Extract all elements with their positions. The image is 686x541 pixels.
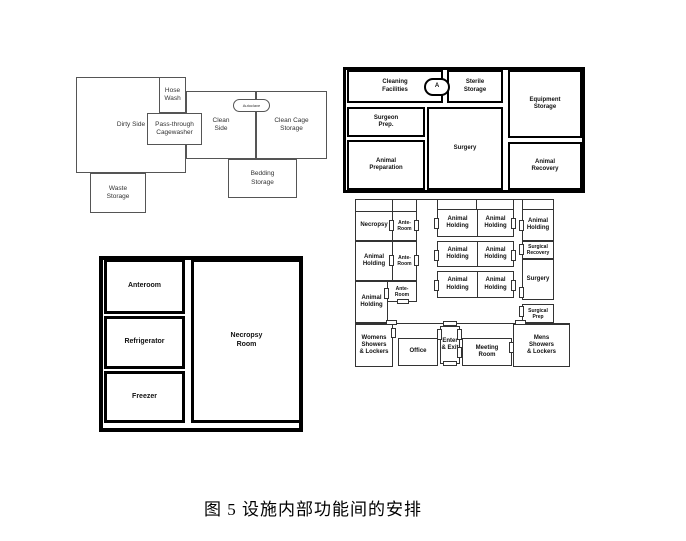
room-animal-holding: Animal Holding: [355, 241, 393, 281]
room-surgical-prep: Surgical Prep: [522, 304, 554, 323]
room-label: Clean Side: [209, 117, 233, 133]
room-equipment-storage: Equipment Storage: [508, 70, 582, 138]
room-label: Animal Preparation: [363, 158, 409, 173]
door-marker: [384, 288, 389, 299]
room-label: Freezer: [132, 393, 157, 402]
door-marker: [397, 299, 409, 304]
room-surgery: Surgery: [427, 107, 503, 190]
room-label: Womens Showers & Lockers: [359, 335, 389, 357]
room-label: Anteroom: [128, 282, 161, 291]
room-label: Hose Wash: [162, 87, 184, 103]
room-animal-holding: Animal Holding: [477, 241, 514, 267]
room-label: Ante-Room: [397, 255, 413, 267]
room-label: Cleaning Facilities: [375, 79, 415, 94]
door-marker: [391, 328, 396, 338]
room-mens-showers-lockers: Mens Showers & Lockers: [513, 324, 570, 367]
door-marker: [519, 220, 524, 231]
door-marker: [414, 220, 419, 231]
room-label: Bedding Storage: [246, 170, 280, 186]
room-label: Ante-Room: [394, 286, 410, 298]
autoclave-label: Autoclave: [243, 103, 261, 108]
room-label: Surgical Prep: [525, 308, 551, 320]
room-label: Animal Holding: [482, 247, 510, 261]
door-marker: [457, 347, 462, 358]
room-label: Dirty Side: [117, 121, 145, 129]
door-marker: [414, 255, 419, 266]
room-label: Animal Holding: [524, 218, 552, 232]
room-animal-holding: Animal Holding: [477, 209, 514, 237]
door-marker: [511, 280, 516, 291]
room-animal-holding: Animal Holding: [437, 209, 478, 237]
room-label: Ante-Room: [397, 220, 413, 232]
corridor-wall: [437, 200, 438, 209]
room-label: Necropsy Room: [227, 332, 267, 350]
room-surgical-recovery: Surgical Recovery: [522, 241, 554, 259]
figure-page: Dirty Side Clean Side Clean Cage Storage…: [0, 0, 686, 541]
room-animal-holding: Animal Holding: [477, 271, 514, 298]
door-marker: [437, 329, 442, 340]
room-refrigerator: Refrigerator: [104, 316, 185, 369]
room-label: Meeting Room: [472, 345, 502, 359]
room-label: Clean Cage Storage: [271, 117, 313, 133]
door-marker: [515, 320, 526, 325]
room-label: Refrigerator: [124, 338, 164, 347]
room-label: Animal Holding: [482, 277, 510, 291]
room-label: Waste Storage: [103, 185, 133, 201]
door-marker: [511, 250, 516, 261]
room-surgeon-prep: Surgeon Prep.: [347, 107, 425, 137]
room-label: Animal Holding: [444, 216, 472, 230]
room-label: Sterile Storage: [460, 79, 490, 94]
room-office: Office: [398, 338, 438, 366]
room-hose-wash: Hose Wash: [159, 77, 186, 113]
corridor-wall: [522, 200, 523, 209]
room-label: Equipment Storage: [523, 97, 567, 112]
room-anteroom: Anteroom: [104, 259, 185, 314]
door-marker: [434, 250, 439, 261]
door-marker: [443, 321, 457, 326]
room-label: Animal Holding: [482, 216, 510, 230]
corridor-wall: [355, 199, 554, 200]
room-label: Pass-through Cagewasher: [152, 121, 198, 137]
corridor-wall: [355, 200, 356, 211]
room-pass-through-cagewasher: Pass-through Cagewasher: [147, 113, 202, 145]
room-animal-holding: Animal Holding: [437, 271, 478, 298]
door-marker: [519, 244, 524, 255]
corridor-wall: [476, 200, 477, 209]
corridor-wall: [416, 200, 417, 211]
room-womens-showers-lockers: Womens Showers & Lockers: [355, 324, 393, 367]
room-animal-preparation: Animal Preparation: [347, 140, 425, 190]
corridor-wall: [553, 200, 554, 209]
room-necropsy-room: Necropsy Room: [191, 259, 302, 423]
room-waste-storage: Waste Storage: [90, 173, 146, 213]
room-animal-holding: Animal Holding: [522, 209, 554, 241]
room-label: Animal Holding: [360, 254, 388, 268]
room-label: Animal Holding: [358, 295, 386, 309]
door-marker: [386, 320, 397, 325]
door-marker: [434, 218, 439, 229]
door-marker: [389, 255, 394, 266]
autoclave-a-label: A: [435, 83, 439, 91]
room-bedding-storage: Bedding Storage: [228, 159, 297, 198]
room-animal-recovery: Animal Recovery: [508, 142, 582, 190]
autoclave-oval-a: A: [424, 78, 450, 96]
door-marker: [509, 342, 514, 353]
room-label: Animal Holding: [444, 277, 472, 291]
room-label: Animal Holding: [444, 247, 472, 261]
corridor-wall: [392, 200, 393, 211]
door-marker: [511, 218, 516, 229]
door-marker: [434, 280, 439, 291]
figure-caption: 图 5 设施内部功能间的安排: [204, 495, 422, 520]
room-label: Surgery: [527, 276, 550, 283]
door-marker: [457, 329, 462, 340]
room-meeting-room: Meeting Room: [462, 338, 512, 366]
room-label: Mens Showers & Lockers: [527, 335, 557, 357]
corridor-wall: [513, 200, 514, 209]
door-marker: [389, 220, 394, 231]
door-marker: [519, 306, 524, 317]
door-marker: [443, 361, 457, 366]
room-sterile-storage: Sterile Storage: [447, 70, 503, 103]
room-label: Surgeon Prep.: [369, 115, 403, 130]
room-necropsy: Necropsy: [355, 211, 393, 241]
room-freezer: Freezer: [104, 371, 185, 423]
room-animal-holding: Animal Holding: [437, 241, 478, 267]
autoclave-oval: Autoclave: [233, 99, 270, 112]
room-label: Necropsy: [360, 222, 387, 229]
room-label: Surgical Recovery: [525, 244, 551, 256]
room-label: Surgery: [454, 145, 477, 153]
room-surgery-holding: Surgery: [522, 259, 554, 300]
room-label: Animal Recovery: [527, 159, 563, 174]
room-label: Office: [409, 348, 426, 355]
door-marker: [519, 287, 524, 298]
